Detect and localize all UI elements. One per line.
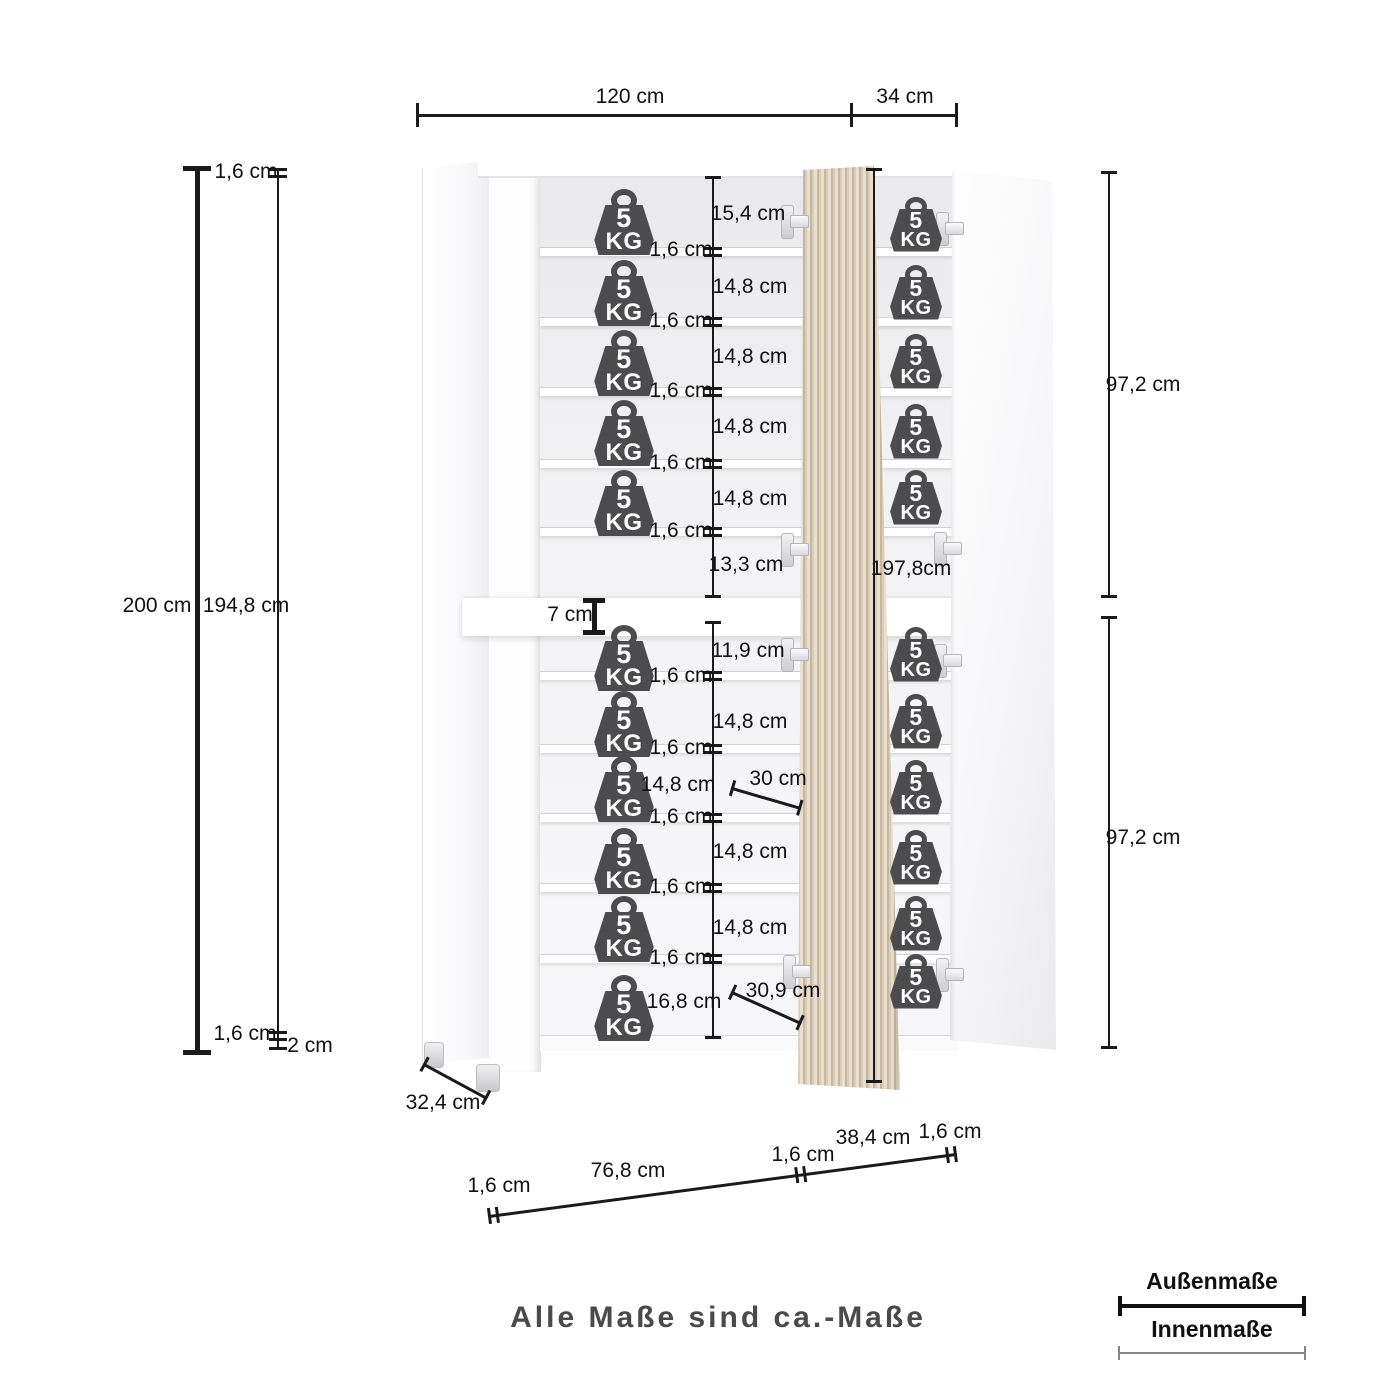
weight-body: 5KG xyxy=(889,706,943,749)
dimension-label: 1,6 cm xyxy=(214,160,277,184)
dimension-label: 14,8 cm xyxy=(713,840,788,864)
weight-5kg-icon: 5KG xyxy=(593,400,655,466)
hinge-arm xyxy=(943,542,962,555)
dimension-tick xyxy=(802,1166,807,1182)
dimension-cap xyxy=(183,166,211,171)
weight-5kg-icon: 5KG xyxy=(593,189,655,255)
weight-unit: KG xyxy=(606,372,643,395)
weight-body: 5KG xyxy=(593,205,655,255)
weight-5kg-icon: 5KG xyxy=(593,470,655,536)
weight-body: 5KG xyxy=(889,416,943,459)
hinge-arm xyxy=(943,654,962,667)
dimension-cap xyxy=(955,103,958,127)
weight-unit: KG xyxy=(606,302,643,325)
dimension-tick xyxy=(953,1146,958,1162)
dimension-line-vertical xyxy=(195,168,200,1052)
dimension-label: 14,8 cm xyxy=(713,345,788,369)
dimension-label: 1,6 cm xyxy=(649,309,712,333)
weight-body: 5KG xyxy=(593,346,655,396)
dimension-label: 30 cm xyxy=(749,767,806,791)
dimension-label: 120 cm xyxy=(596,85,665,109)
dimension-label: 32,4 cm xyxy=(406,1091,481,1115)
dimension-label: 76,8 cm xyxy=(591,1159,666,1183)
dimension-cap xyxy=(1101,616,1117,619)
hinge-icon xyxy=(781,533,809,567)
measurement-legend: Außenmaße Innenmaße xyxy=(1112,1268,1312,1363)
approx-measurements-note: Alle Maße sind ca.-Maße xyxy=(510,1301,926,1335)
weight-unit: KG xyxy=(606,512,643,535)
weight-5kg-icon: 5KG xyxy=(889,265,943,320)
weight-5kg-icon: 5KG xyxy=(889,694,943,749)
weight-value: 5 xyxy=(909,640,922,662)
dimension-tick xyxy=(487,1208,492,1224)
weight-body: 5KG xyxy=(593,641,655,691)
weight-unit: KG xyxy=(606,733,643,756)
dimension-label: 194,8 cm xyxy=(203,594,289,618)
dimension-label: 197,8cm xyxy=(871,557,952,581)
dimension-label: 14,8 cm xyxy=(641,773,716,797)
dimension-label: 14,8 cm xyxy=(713,275,788,299)
weight-5kg-icon: 5KG xyxy=(889,760,943,815)
cabinet-top-panel xyxy=(478,150,958,178)
weight-unit: KG xyxy=(901,661,932,680)
weight-value: 5 xyxy=(909,278,922,300)
weight-value: 5 xyxy=(909,347,922,369)
dimension-cap xyxy=(866,1080,882,1083)
dimension-cap xyxy=(866,168,882,171)
dimension-cap xyxy=(705,1036,721,1039)
weight-5kg-icon: 5KG xyxy=(593,828,655,894)
weight-body: 5KG xyxy=(593,912,655,962)
dimension-line-vertical xyxy=(873,170,875,1082)
hinge-arm xyxy=(945,968,964,981)
weight-body: 5KG xyxy=(889,482,943,525)
weight-body: 5KG xyxy=(889,772,943,815)
dimension-label: 16,8 cm xyxy=(647,990,722,1014)
weight-unit: KG xyxy=(901,368,932,387)
weight-body: 5KG xyxy=(889,842,943,885)
dimension-label: 1,6 cm xyxy=(649,238,712,262)
dimension-diagram: Alle Maße sind ca.-Maße Außenmaße Innenm… xyxy=(0,0,1400,1400)
dimension-label: 7 cm xyxy=(547,603,593,627)
weight-value: 5 xyxy=(909,843,922,865)
legend-inner-label: Innenmaße xyxy=(1112,1316,1312,1344)
dimension-label: 1,6 cm xyxy=(649,519,712,543)
dimension-label: 38,4 cm xyxy=(836,1126,911,1150)
dimension-label: 15,4 cm xyxy=(711,202,786,226)
dimension-tick xyxy=(945,1147,950,1163)
weight-unit: KG xyxy=(606,667,643,690)
dimension-cap xyxy=(583,630,605,635)
weight-unit: KG xyxy=(901,930,932,949)
weight-value: 5 xyxy=(909,707,922,729)
hinge-arm xyxy=(790,648,809,661)
weight-body: 5KG xyxy=(889,966,943,1009)
dimension-tick xyxy=(794,1167,799,1183)
dimension-label: 1,6 cm xyxy=(649,664,712,688)
dimension-label: 1,6 cm xyxy=(649,946,712,970)
dimension-cap xyxy=(183,1050,211,1055)
weight-body: 5KG xyxy=(593,486,655,536)
cabinet-foot xyxy=(476,1064,500,1092)
weight-5kg-icon: 5KG xyxy=(889,197,943,252)
dimension-label: 2 cm xyxy=(287,1034,333,1058)
dimension-label: 13,3 cm xyxy=(709,553,784,577)
dimension-label: 97,2 cm xyxy=(1106,373,1181,397)
weight-body: 5KG xyxy=(593,276,655,326)
hinge-arm xyxy=(790,543,809,556)
weight-body: 5KG xyxy=(593,844,655,894)
weight-unit: KG xyxy=(606,1017,643,1040)
weight-unit: KG xyxy=(901,864,932,883)
dimension-line-horizontal xyxy=(417,114,956,117)
weight-unit: KG xyxy=(901,438,932,457)
legend-inner-cap-right xyxy=(1304,1346,1306,1360)
weight-unit: KG xyxy=(606,231,643,254)
legend-outer-label: Außenmaße xyxy=(1112,1268,1312,1296)
dimension-label: 1,6 cm xyxy=(649,379,712,403)
legend-outer-cap-right xyxy=(1302,1296,1306,1316)
weight-unit: KG xyxy=(606,798,643,821)
weight-unit: KG xyxy=(901,728,932,747)
dimension-cap xyxy=(1101,171,1117,174)
weight-5kg-icon: 5KG xyxy=(889,627,943,682)
hinge-icon xyxy=(781,638,809,672)
weight-5kg-icon: 5KG xyxy=(889,404,943,459)
dimension-tick xyxy=(481,1090,491,1105)
weight-5kg-icon: 5KG xyxy=(889,954,943,1009)
weight-5kg-icon: 5KG xyxy=(889,470,943,525)
dimension-label: 1,6 cm xyxy=(918,1120,981,1144)
weight-unit: KG xyxy=(606,938,643,961)
weight-5kg-icon: 5KG xyxy=(889,334,943,389)
weight-body: 5KG xyxy=(889,277,943,320)
weight-unit: KG xyxy=(901,231,932,250)
dimension-line-diagonal xyxy=(489,1153,957,1218)
dimension-tick xyxy=(269,1047,287,1050)
dimension-label: 1,6 cm xyxy=(649,736,712,760)
weight-value: 5 xyxy=(909,483,922,505)
dimension-cap xyxy=(1101,1046,1117,1049)
weight-value: 5 xyxy=(909,210,922,232)
weight-value: 5 xyxy=(909,773,922,795)
dimension-label: 1,6 cm xyxy=(213,1022,276,1046)
open-right-door xyxy=(950,168,1056,1054)
dimension-cap xyxy=(1101,595,1117,598)
dimension-label: 1,6 cm xyxy=(649,875,712,899)
dimension-label: 14,8 cm xyxy=(713,710,788,734)
weight-5kg-icon: 5KG xyxy=(889,896,943,951)
dimension-label: 1,6 cm xyxy=(467,1174,530,1198)
weight-body: 5KG xyxy=(889,346,943,389)
dimension-label: 97,2 cm xyxy=(1106,826,1181,850)
dimension-label: 11,9 cm xyxy=(711,639,784,663)
dimension-label: 14,8 cm xyxy=(713,415,788,439)
dimension-cap xyxy=(416,103,419,127)
legend-outer-bar xyxy=(1120,1304,1304,1308)
dimension-label: 1,6 cm xyxy=(649,451,712,475)
hinge-arm xyxy=(945,222,964,235)
weight-body: 5KG xyxy=(889,908,943,951)
hinge-arm xyxy=(790,215,809,228)
dimension-tick xyxy=(419,1057,429,1072)
weight-value: 5 xyxy=(909,909,922,931)
weight-unit: KG xyxy=(606,442,643,465)
dimension-cap xyxy=(705,595,721,598)
weight-unit: KG xyxy=(606,870,643,893)
dimension-label: 14,8 cm xyxy=(713,916,788,940)
weight-unit: KG xyxy=(901,299,932,318)
dimension-label: 1,6 cm xyxy=(771,1143,834,1167)
legend-inner-bar xyxy=(1120,1352,1304,1354)
legend-inner-line xyxy=(1112,1343,1312,1363)
dimension-label: 1,6 cm xyxy=(649,805,712,829)
weight-value: 5 xyxy=(909,967,922,989)
weight-value: 5 xyxy=(909,417,922,439)
dimension-cap xyxy=(850,103,853,127)
weight-5kg-icon: 5KG xyxy=(593,260,655,326)
weight-5kg-icon: 5KG xyxy=(593,896,655,962)
weight-body: 5KG xyxy=(593,707,655,757)
weight-body: 5KG xyxy=(593,416,655,466)
hinge-arm xyxy=(792,965,811,978)
dimension-label: 14,8 cm xyxy=(713,487,788,511)
weight-5kg-icon: 5KG xyxy=(593,691,655,757)
weight-5kg-icon: 5KG xyxy=(593,330,655,396)
dimension-label: 200 cm xyxy=(123,594,192,618)
dimension-tick xyxy=(495,1207,500,1223)
dimension-label: 30,9 cm xyxy=(746,979,821,1003)
weight-body: 5KG xyxy=(889,209,943,252)
weight-unit: KG xyxy=(901,504,932,523)
weight-5kg-icon: 5KG xyxy=(889,830,943,885)
legend-outer-line xyxy=(1112,1296,1312,1316)
weight-unit: KG xyxy=(901,794,932,813)
dimension-label: 34 cm xyxy=(876,85,933,109)
dimension-cap xyxy=(705,176,721,179)
dimension-cap xyxy=(705,621,721,624)
weight-unit: KG xyxy=(901,988,932,1007)
weight-body: 5KG xyxy=(889,639,943,682)
